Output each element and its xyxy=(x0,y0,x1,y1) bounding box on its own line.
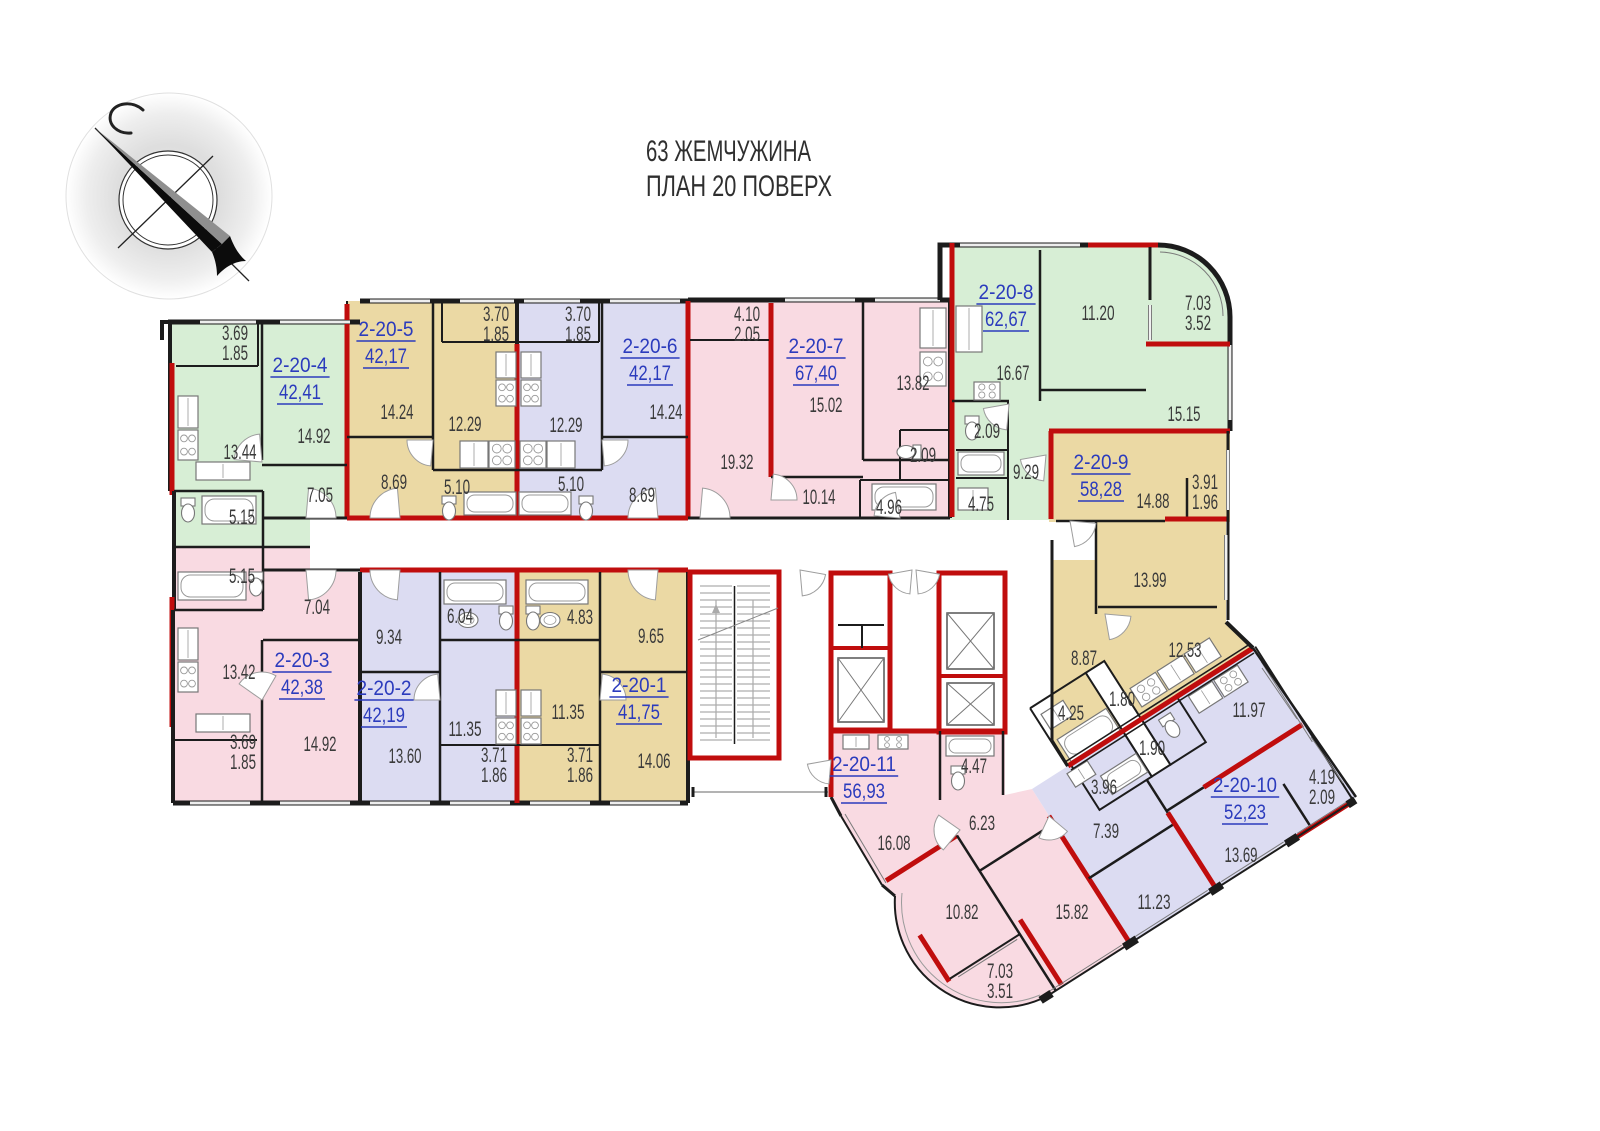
svg-text:9.65: 9.65 xyxy=(638,625,664,648)
svg-text:1.85: 1.85 xyxy=(230,751,256,774)
svg-text:67,40: 67,40 xyxy=(795,362,837,385)
svg-text:42,38: 42,38 xyxy=(281,676,323,699)
svg-text:5.10: 5.10 xyxy=(558,473,584,496)
svg-text:1.85: 1.85 xyxy=(222,342,248,365)
svg-text:14.88: 14.88 xyxy=(1137,490,1170,513)
svg-text:2-20-8: 2-20-8 xyxy=(979,281,1034,304)
svg-text:2-20-5: 2-20-5 xyxy=(359,318,414,341)
svg-text:11.23: 11.23 xyxy=(1138,891,1171,914)
svg-text:2.09: 2.09 xyxy=(1309,786,1335,809)
svg-text:1.86: 1.86 xyxy=(481,764,507,787)
svg-text:7.39: 7.39 xyxy=(1093,820,1119,843)
svg-text:12.53: 12.53 xyxy=(1169,639,1202,662)
svg-text:13.82: 13.82 xyxy=(897,372,930,395)
svg-text:56,93: 56,93 xyxy=(843,780,885,803)
svg-text:19.32: 19.32 xyxy=(721,451,754,474)
svg-text:1.85: 1.85 xyxy=(565,323,591,346)
svg-text:ПЛАН 20 ПОВЕРХ: ПЛАН 20 ПОВЕРХ xyxy=(646,170,832,203)
svg-text:14.92: 14.92 xyxy=(298,425,331,448)
svg-text:16.67: 16.67 xyxy=(997,362,1030,385)
svg-text:2-20-3: 2-20-3 xyxy=(275,649,330,672)
svg-text:6.04: 6.04 xyxy=(447,605,473,628)
svg-text:14.24: 14.24 xyxy=(650,401,683,424)
svg-text:13.69: 13.69 xyxy=(1225,844,1258,867)
svg-text:10.82: 10.82 xyxy=(946,901,979,924)
svg-text:7.05: 7.05 xyxy=(307,484,333,507)
svg-text:11.35: 11.35 xyxy=(552,701,585,724)
svg-text:3.51: 3.51 xyxy=(987,980,1013,1003)
svg-text:2-20-9: 2-20-9 xyxy=(1074,451,1129,474)
svg-text:13.42: 13.42 xyxy=(223,661,256,684)
svg-text:1.96: 1.96 xyxy=(1192,491,1218,514)
svg-text:41,75: 41,75 xyxy=(618,701,660,724)
svg-text:8.87: 8.87 xyxy=(1071,647,1097,670)
svg-text:12.29: 12.29 xyxy=(550,414,583,437)
svg-text:3.96: 3.96 xyxy=(1091,776,1117,799)
svg-text:5.10: 5.10 xyxy=(444,476,470,499)
svg-text:58,28: 58,28 xyxy=(1080,478,1122,501)
svg-text:62,67: 62,67 xyxy=(985,308,1027,331)
svg-text:9.34: 9.34 xyxy=(376,626,402,649)
svg-text:2-20-4: 2-20-4 xyxy=(273,354,328,377)
svg-text:5.15: 5.15 xyxy=(229,506,255,529)
svg-text:11.35: 11.35 xyxy=(449,718,482,741)
svg-text:13.60: 13.60 xyxy=(389,745,422,768)
svg-text:2-20-7: 2-20-7 xyxy=(789,335,844,358)
svg-text:4.83: 4.83 xyxy=(567,606,593,629)
svg-text:14.92: 14.92 xyxy=(304,733,337,756)
svg-text:14.24: 14.24 xyxy=(381,401,414,424)
svg-text:12.29: 12.29 xyxy=(449,413,482,436)
svg-text:52,23: 52,23 xyxy=(1224,801,1266,824)
svg-text:11.20: 11.20 xyxy=(1082,302,1115,325)
svg-text:3.52: 3.52 xyxy=(1185,312,1211,335)
svg-text:14.06: 14.06 xyxy=(638,750,671,773)
svg-text:63 ЖЕМЧУЖИНА: 63 ЖЕМЧУЖИНА xyxy=(646,135,811,168)
svg-text:9.29: 9.29 xyxy=(1013,461,1039,484)
svg-text:15.02: 15.02 xyxy=(810,394,843,417)
svg-text:6.23: 6.23 xyxy=(969,812,995,835)
svg-text:4.75: 4.75 xyxy=(968,493,994,516)
svg-text:4.47: 4.47 xyxy=(961,755,987,778)
svg-text:11.97: 11.97 xyxy=(1233,699,1266,722)
svg-text:13.99: 13.99 xyxy=(1134,569,1167,592)
svg-text:15.82: 15.82 xyxy=(1056,901,1089,924)
svg-text:1.86: 1.86 xyxy=(567,764,593,787)
svg-text:2.05: 2.05 xyxy=(734,323,760,346)
svg-text:10.14: 10.14 xyxy=(803,486,836,509)
svg-text:1.90: 1.90 xyxy=(1139,737,1165,760)
svg-text:15.15: 15.15 xyxy=(1168,403,1201,426)
svg-text:8.69: 8.69 xyxy=(381,471,407,494)
svg-text:2-20-10: 2-20-10 xyxy=(1213,774,1277,797)
svg-text:42,17: 42,17 xyxy=(365,345,407,368)
svg-text:42,17: 42,17 xyxy=(629,362,671,385)
svg-text:2-20-11: 2-20-11 xyxy=(832,753,896,776)
svg-text:1.85: 1.85 xyxy=(483,323,509,346)
svg-text:5.15: 5.15 xyxy=(229,565,255,588)
svg-text:4.96: 4.96 xyxy=(876,496,902,519)
svg-text:2-20-2: 2-20-2 xyxy=(357,677,412,700)
svg-text:42,19: 42,19 xyxy=(363,704,405,727)
svg-text:2.09: 2.09 xyxy=(974,420,1000,443)
svg-text:13.44: 13.44 xyxy=(224,441,257,464)
svg-text:2.09: 2.09 xyxy=(910,444,936,467)
svg-text:2-20-6: 2-20-6 xyxy=(623,335,678,358)
svg-text:2-20-1: 2-20-1 xyxy=(612,674,667,697)
svg-text:16.08: 16.08 xyxy=(878,832,911,855)
svg-text:7.04: 7.04 xyxy=(304,596,330,619)
svg-text:42,41: 42,41 xyxy=(279,381,321,404)
svg-text:1.80: 1.80 xyxy=(1109,688,1135,711)
svg-text:8.69: 8.69 xyxy=(629,484,655,507)
svg-text:4.25: 4.25 xyxy=(1058,702,1084,725)
